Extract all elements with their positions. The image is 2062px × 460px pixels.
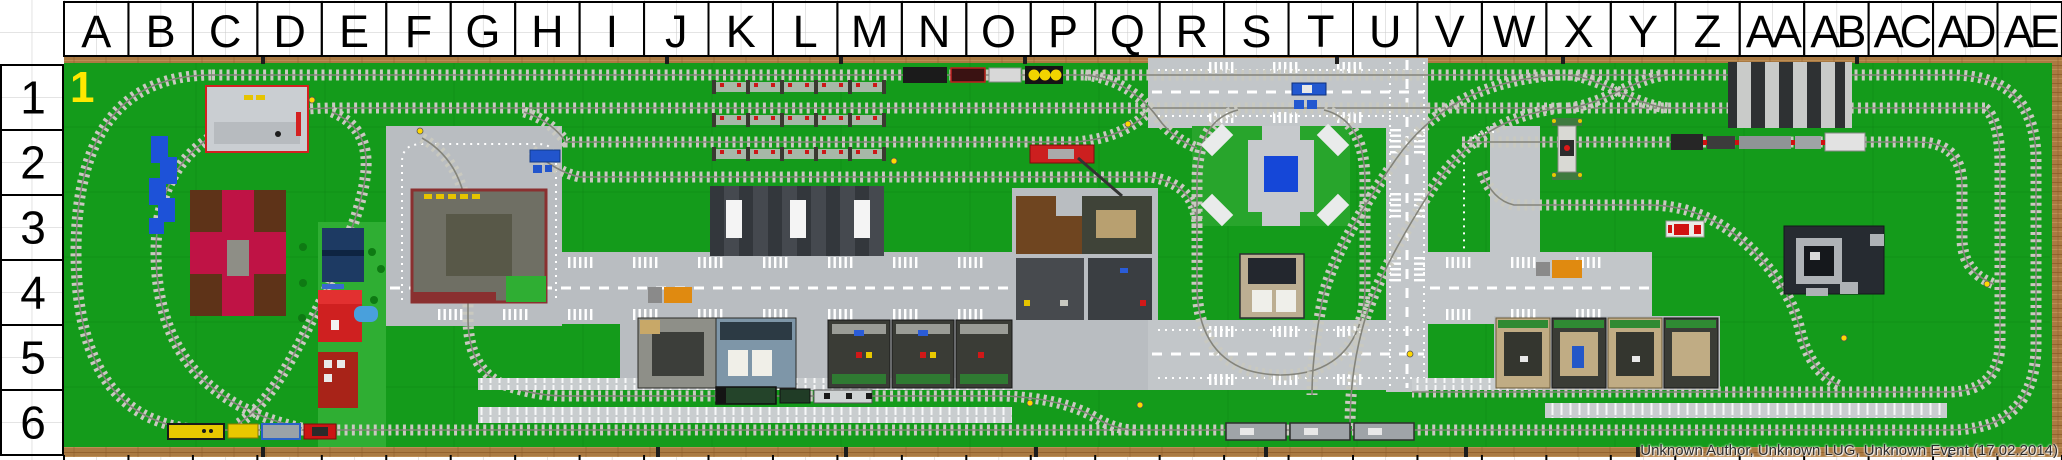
- crosswalk: [1295, 326, 1297, 337]
- building-part: [296, 112, 301, 136]
- layout-canvas[interactable]: ABCDEFGHIJKLMNOPQRSTUVWXYZAAABACADAE1234…: [0, 0, 2062, 460]
- crossing-light: [873, 150, 877, 154]
- vehicle-part: [209, 429, 213, 433]
- building-part: [190, 274, 222, 316]
- vehicle-part: [1735, 140, 1739, 145]
- flat-car: [814, 390, 872, 403]
- crosswalk: [1215, 326, 1217, 337]
- crosswalk: [915, 309, 917, 320]
- crosswalk: [1593, 257, 1595, 268]
- crosswalk: [1284, 326, 1286, 337]
- signal-light: [1841, 335, 1847, 341]
- crosswalk: [1231, 374, 1233, 385]
- column-header-label-AC: AC: [1874, 6, 1931, 57]
- flat-wagon: [262, 424, 300, 439]
- column-header-label-W: W: [1493, 6, 1536, 57]
- building-part: [337, 360, 345, 368]
- crossing-light: [737, 116, 741, 120]
- crossing-light: [788, 83, 792, 87]
- crosswalk: [969, 309, 971, 320]
- building-part: [254, 190, 286, 232]
- building-part: [1821, 62, 1835, 128]
- building-part: [324, 360, 332, 368]
- building-part: [1248, 258, 1296, 284]
- grid-tick: [1030, 455, 1032, 460]
- crosswalk: [1390, 199, 1401, 201]
- column-header-label-U: U: [1369, 6, 1402, 57]
- passenger-car: [1354, 423, 1414, 440]
- crossing-light: [839, 116, 843, 120]
- vehicle-part: [1029, 70, 1040, 81]
- crosswalk: [1414, 263, 1425, 265]
- white-wagon: [989, 68, 1021, 82]
- grid-tick: [321, 455, 323, 460]
- crosswalk: [1231, 62, 1233, 73]
- crosswalk: [1390, 210, 1401, 212]
- building-part: [652, 332, 704, 376]
- crossing-light: [788, 150, 792, 154]
- crosswalk: [503, 309, 505, 320]
- building-part: [446, 214, 512, 276]
- crosswalk: [1284, 112, 1286, 123]
- crosswalk: [585, 257, 587, 268]
- vehicle-part: [866, 393, 872, 399]
- building-part: [275, 131, 281, 137]
- crossing-light: [856, 83, 860, 87]
- crosswalk: [1452, 309, 1454, 320]
- table-joint: [656, 447, 660, 457]
- crosswalk: [1446, 309, 1448, 320]
- vehicle-part: [1294, 100, 1304, 109]
- crosswalk: [568, 309, 570, 320]
- crosswalk: [568, 257, 570, 268]
- crosswalk: [1390, 268, 1401, 270]
- crosswalk: [1533, 257, 1535, 268]
- crosswalk: [1390, 279, 1401, 281]
- crossing-light: [856, 116, 860, 120]
- crossing-light: [839, 150, 843, 154]
- grid-tick: [1610, 455, 1612, 460]
- column-header-label-AE: AE: [2004, 6, 2059, 57]
- crossing-light: [720, 150, 724, 154]
- crosswalk: [1295, 112, 1297, 123]
- grid-tick: [127, 455, 129, 460]
- building-part: [1737, 62, 1751, 128]
- column-header-label-B: B: [146, 6, 176, 57]
- crosswalk: [785, 257, 787, 268]
- diesel-locomotive: [1671, 134, 1703, 150]
- grid-tick: [901, 455, 903, 460]
- crossing-post: [814, 147, 818, 161]
- grid-tick: [643, 455, 645, 460]
- crosswalk: [1359, 374, 1361, 385]
- crossing-light: [771, 83, 775, 87]
- crosswalk: [633, 309, 635, 320]
- building-part: [726, 200, 742, 238]
- crosswalk: [774, 257, 776, 268]
- vehicle-part: [1821, 140, 1825, 145]
- column-header-label-AB: AB: [1810, 6, 1864, 57]
- crossing-light: [771, 150, 775, 154]
- crosswalk: [520, 309, 522, 320]
- table-joint: [1561, 56, 1565, 64]
- building-part: [254, 274, 286, 316]
- column-header-label-O: O: [981, 6, 1016, 57]
- building-part: [1632, 356, 1640, 362]
- crosswalk: [698, 257, 700, 268]
- building-part: [1765, 62, 1779, 128]
- building-part: [960, 324, 1008, 334]
- building-part: [222, 190, 254, 232]
- grid-tick: [1223, 455, 1225, 460]
- crosswalk: [1414, 151, 1425, 153]
- crossing-post: [814, 113, 818, 127]
- crosswalk: [704, 257, 706, 268]
- vehicle-part: [716, 387, 726, 404]
- crossing-post: [780, 113, 784, 127]
- building-part: [896, 374, 950, 384]
- building-part: [256, 95, 265, 100]
- plaza-blue-square: [1264, 156, 1298, 192]
- crosswalk: [455, 309, 457, 320]
- building-part: [1504, 332, 1542, 376]
- passenger-car: [1290, 423, 1350, 440]
- crosswalk: [644, 257, 646, 268]
- building-part: [1056, 216, 1082, 254]
- signal-light: [1984, 281, 1990, 287]
- crosswalk: [1354, 62, 1356, 73]
- crosswalk: [1511, 257, 1513, 268]
- crosswalk: [1354, 112, 1356, 123]
- building-part: [460, 194, 468, 199]
- truck-box: [664, 287, 692, 303]
- crosswalk: [850, 257, 852, 268]
- brown-roof-building: [1016, 196, 1056, 254]
- crosswalk: [1220, 374, 1222, 385]
- table-joint: [1335, 56, 1339, 64]
- building-part: [412, 292, 496, 302]
- building-part: [854, 330, 864, 336]
- crosswalk: [904, 257, 906, 268]
- crosswalk: [579, 257, 581, 268]
- column-header-label-A: A: [81, 6, 111, 57]
- building-part: [832, 374, 886, 384]
- tree: [299, 243, 307, 251]
- crosswalk: [1457, 309, 1459, 320]
- crossing-post: [780, 80, 784, 94]
- crosswalk: [1290, 112, 1292, 123]
- column-header-label-T: T: [1307, 6, 1335, 57]
- building-part: [324, 374, 332, 382]
- building-part: [331, 320, 339, 330]
- crosswalk: [1209, 62, 1211, 73]
- crosswalk: [1390, 204, 1401, 206]
- building-part: [753, 186, 768, 256]
- crosswalk: [780, 257, 782, 268]
- crosswalk: [1414, 279, 1425, 281]
- crosswalk: [444, 309, 446, 320]
- crosswalk: [1414, 268, 1425, 270]
- building-part: [1840, 282, 1858, 294]
- table-joint: [665, 56, 669, 64]
- vehicle-part: [1368, 428, 1382, 435]
- building-part: [1806, 288, 1828, 296]
- building-part: [811, 186, 826, 256]
- level-crossing-gate: [1552, 118, 1582, 126]
- grid-tick: [1159, 455, 1161, 460]
- table-joint: [261, 56, 265, 64]
- table-joint: [1034, 447, 1038, 457]
- crosswalk: [1457, 257, 1459, 268]
- signal-light: [891, 158, 897, 164]
- building-part: [1140, 300, 1146, 306]
- building-part: [1793, 62, 1807, 128]
- grid-tick: [1481, 455, 1483, 460]
- crosswalk: [574, 309, 576, 320]
- crosswalk: [655, 257, 657, 268]
- building-part: [866, 352, 872, 358]
- crosswalk: [1390, 135, 1401, 137]
- truck-box: [1552, 260, 1582, 278]
- tree: [377, 265, 385, 273]
- crossing-light: [856, 150, 860, 154]
- crosswalk: [834, 309, 836, 320]
- crosswalk: [1452, 257, 1454, 268]
- crosswalk: [574, 257, 576, 268]
- platform-hatch: [1545, 403, 1947, 418]
- crosswalk: [904, 309, 906, 320]
- crosswalk: [1215, 374, 1217, 385]
- freight-wagon: [1739, 136, 1791, 149]
- building-part: [506, 276, 546, 302]
- yellow-locomotive: [168, 424, 224, 439]
- building-part: [918, 330, 928, 336]
- grid-tick: [385, 455, 387, 460]
- crosswalk: [449, 309, 451, 320]
- grid-tick: [1094, 455, 1096, 460]
- crossing-light: [754, 83, 758, 87]
- building-part: [1262, 212, 1300, 226]
- signal-light: [309, 97, 315, 103]
- crosswalk: [438, 309, 440, 320]
- crossing-post: [848, 80, 852, 94]
- building-part: [840, 186, 855, 256]
- crossing-light: [805, 150, 809, 154]
- crossing-light: [822, 116, 826, 120]
- row-header-label-5: 5: [20, 332, 46, 384]
- crossing-post: [848, 113, 852, 127]
- crosswalk: [1463, 309, 1465, 320]
- vehicle-part: [1040, 70, 1051, 81]
- column-header-label-J: J: [665, 6, 688, 57]
- building-part: [1572, 346, 1584, 368]
- tree: [368, 248, 376, 256]
- building-part: [322, 250, 364, 256]
- building-part: [728, 350, 748, 376]
- building-part: [1498, 320, 1548, 328]
- crosswalk: [1468, 257, 1470, 268]
- building-part: [1252, 290, 1272, 312]
- freight-wagon: [951, 68, 985, 82]
- crosswalk: [980, 309, 982, 320]
- crossing-post: [746, 80, 750, 94]
- crosswalk: [1517, 257, 1519, 268]
- building-part: [856, 352, 862, 358]
- vehicle-part: [1703, 140, 1707, 145]
- building-part: [1016, 258, 1084, 320]
- crosswalk: [964, 309, 966, 320]
- column-header-label-H: H: [531, 6, 564, 57]
- crossing-light: [822, 83, 826, 87]
- police-van: [530, 150, 560, 162]
- truck-cab: [648, 287, 662, 303]
- grid-tick: [772, 455, 774, 460]
- tree: [299, 279, 307, 287]
- crossing-light: [788, 116, 792, 120]
- crosswalk: [828, 309, 830, 320]
- crossing-post: [746, 147, 750, 161]
- building-part: [720, 322, 792, 340]
- crosswalk: [1468, 309, 1470, 320]
- column-header-label-D: D: [273, 6, 306, 57]
- crosswalk: [910, 257, 912, 268]
- table-joint: [1855, 56, 1859, 64]
- vehicle-part: [1674, 224, 1689, 235]
- building-part: [1120, 268, 1128, 273]
- crosswalk: [639, 257, 641, 268]
- crosswalk: [1273, 112, 1275, 123]
- crossing-light: [839, 83, 843, 87]
- crosswalk: [715, 257, 717, 268]
- crosswalk: [1390, 140, 1401, 142]
- building-part: [960, 374, 1008, 384]
- vehicle-part: [545, 165, 552, 172]
- crosswalk: [1226, 374, 1228, 385]
- signal-light: [1407, 351, 1413, 357]
- crossing-post: [712, 113, 716, 127]
- building-part: [1552, 119, 1556, 123]
- crosswalk: [1279, 326, 1281, 337]
- building-part: [752, 350, 772, 376]
- crosswalk: [1279, 112, 1281, 123]
- yellow-wagon: [228, 424, 258, 438]
- vehicle-part: [1302, 85, 1312, 93]
- vehicle-part: [1048, 149, 1074, 159]
- column-header-label-AA: AA: [1746, 6, 1802, 57]
- signal-light: [1137, 402, 1143, 408]
- layout-group: [64, 56, 2062, 457]
- building-part: [1552, 172, 1582, 180]
- building-part: [1666, 320, 1716, 328]
- crossing-light: [771, 116, 775, 120]
- crosswalk: [590, 257, 592, 268]
- column-header-label-S: S: [1241, 6, 1271, 57]
- building-part: [1578, 119, 1582, 123]
- crosswalk: [1414, 146, 1425, 148]
- column-header-label-P: P: [1048, 6, 1078, 57]
- crosswalk: [850, 309, 852, 320]
- column-header-label-M: M: [851, 6, 889, 57]
- building-part: [790, 200, 806, 238]
- vehicle-part: [1307, 100, 1317, 109]
- crosswalk: [1390, 215, 1401, 217]
- crossing-light: [822, 150, 826, 154]
- building-part: [1262, 126, 1300, 142]
- tree: [298, 314, 306, 322]
- crossing-light: [720, 83, 724, 87]
- row-header-label-4: 4: [20, 267, 46, 319]
- building-part: [1870, 234, 1884, 246]
- vehicle-part: [1240, 428, 1254, 435]
- crosswalk: [975, 257, 977, 268]
- crosswalk: [834, 257, 836, 268]
- crosswalk: [509, 309, 511, 320]
- building-part: [1810, 252, 1820, 260]
- grid-tick: [192, 455, 194, 460]
- building-part: [214, 122, 300, 144]
- building-part: [1564, 145, 1570, 151]
- bluebrick-layout-page: ABCDEFGHIJKLMNOPQRSTUVWXYZAAABACADAE1234…: [0, 0, 2062, 460]
- column-header-label-Q: Q: [1110, 6, 1145, 57]
- crosswalk: [845, 309, 847, 320]
- crosswalk: [1348, 62, 1350, 73]
- crosswalk: [1273, 326, 1275, 337]
- crosswalk: [1295, 374, 1297, 385]
- grid-tick: [1416, 455, 1418, 460]
- column-header-label-V: V: [1435, 6, 1465, 57]
- table-joint: [839, 56, 843, 64]
- column-header-label-R: R: [1176, 6, 1209, 57]
- tender: [780, 389, 810, 403]
- crosswalk: [1414, 140, 1425, 142]
- column-header-label-L: L: [793, 6, 818, 57]
- building-part: [869, 186, 884, 256]
- crosswalk: [1598, 257, 1600, 268]
- crosswalk: [1290, 62, 1292, 73]
- crosswalk: [525, 309, 527, 320]
- crosswalk: [899, 309, 901, 320]
- crosswalk: [1337, 374, 1339, 385]
- black-locomotive: [903, 67, 947, 83]
- crossing-post: [882, 113, 886, 127]
- crossing-light: [805, 116, 809, 120]
- column-header-label-E: E: [339, 6, 369, 57]
- row-header-label-6: 6: [20, 397, 46, 449]
- building-part: [1804, 246, 1834, 276]
- table-joint: [1264, 447, 1268, 457]
- crosswalk: [910, 309, 912, 320]
- crosswalk: [1414, 274, 1425, 276]
- building-part: [222, 274, 254, 316]
- crosswalk: [460, 309, 462, 320]
- crosswalk: [1343, 326, 1345, 337]
- crosswalk: [1337, 326, 1339, 337]
- grid-tick: [708, 455, 710, 460]
- crossing-light: [720, 116, 724, 120]
- crossing-light: [754, 116, 758, 120]
- building-part: [1088, 258, 1152, 320]
- crosswalk: [1231, 326, 1233, 337]
- building-part: [1554, 320, 1604, 328]
- signal-light: [1125, 121, 1131, 127]
- origin-marker-label: 1: [70, 63, 94, 112]
- crosswalk: [958, 257, 960, 268]
- crosswalk: [975, 309, 977, 320]
- grid-tick: [1288, 455, 1290, 460]
- vehicle-part: [533, 165, 542, 173]
- crosswalk: [893, 257, 895, 268]
- grid-tick: [1545, 455, 1547, 460]
